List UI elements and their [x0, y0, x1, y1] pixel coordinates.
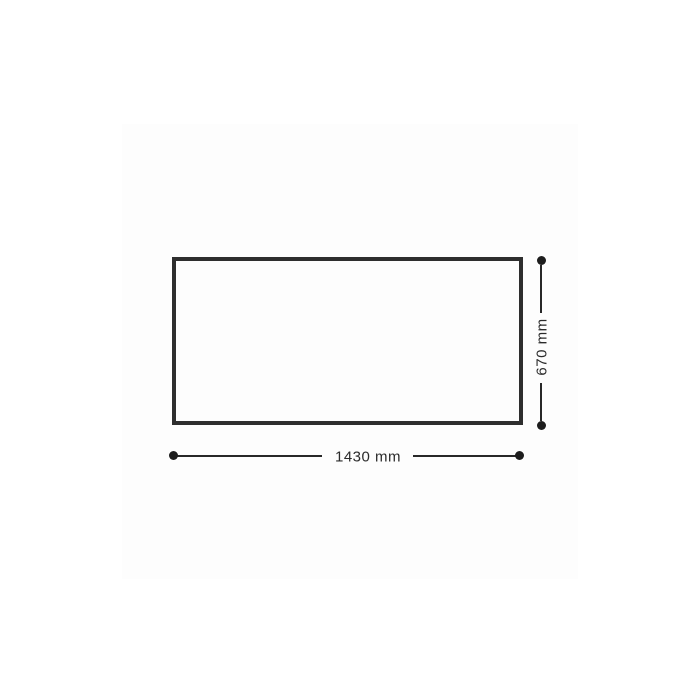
page: 1430 mm 670 mm [0, 0, 700, 700]
width-dimension-dot-right [515, 451, 524, 460]
width-dimension-label: 1430 mm [335, 450, 401, 465]
width-dimension-line-left-segment [175, 455, 322, 457]
height-dimension-line-bottom-segment [540, 383, 542, 421]
rectangle-outline [172, 257, 523, 425]
height-dimension-line-top-segment [540, 265, 542, 313]
height-dimension-dot-bottom [537, 421, 546, 430]
width-dimension-line-right-segment [413, 455, 518, 457]
width-dimension-dot-left [169, 451, 178, 460]
height-dimension-label: 670 mm [535, 318, 550, 375]
height-dimension-dot-top [537, 256, 546, 265]
